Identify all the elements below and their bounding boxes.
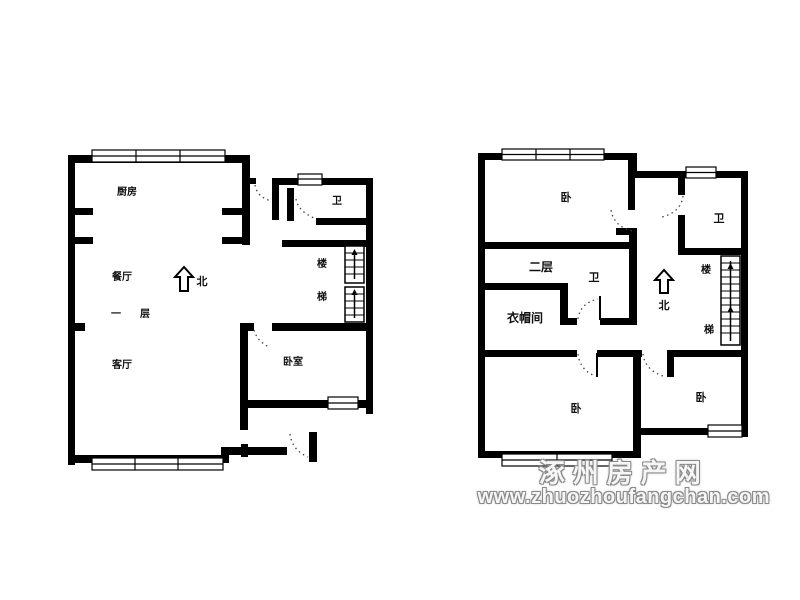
wall-segment xyxy=(667,350,674,377)
door-arc xyxy=(254,330,269,347)
door-arc xyxy=(662,196,683,217)
wall-segment xyxy=(478,153,485,458)
room-label-bath: 卫 xyxy=(589,271,600,284)
first-floor-windows xyxy=(92,150,358,470)
room-label-kitchen: 厨房 xyxy=(117,185,137,198)
wall-segment xyxy=(560,318,577,325)
wall-segment xyxy=(478,283,568,290)
door-arc xyxy=(296,199,314,218)
door-leaf xyxy=(596,353,598,377)
wall-segment xyxy=(241,444,248,457)
door-leaf xyxy=(599,296,601,320)
wall-segment xyxy=(741,171,748,437)
wall-segment xyxy=(222,208,250,215)
wall-segment xyxy=(222,237,250,244)
wall-segment xyxy=(272,323,373,331)
wall-segment xyxy=(240,323,248,430)
wall-segment xyxy=(478,242,637,249)
floor-label: 二层 xyxy=(529,260,553,274)
room-label-bedroom: 卧 xyxy=(561,191,572,204)
second-floor-plan: 卧 卫 二层 卫 北 楼 梯 衣帽间 卧 卧 xyxy=(478,149,748,466)
wall-segment xyxy=(600,318,637,325)
wall-segment xyxy=(68,237,93,244)
north-arrow-icon xyxy=(655,270,673,293)
window xyxy=(92,458,223,470)
window xyxy=(328,397,358,409)
wall-segment xyxy=(242,155,250,245)
floor-plan-canvas: 厨房 卫 餐厅 一 层 北 客厅 卧室 楼 梯 xyxy=(0,0,800,600)
stair-flight-icon xyxy=(345,246,364,283)
wall-segment xyxy=(316,218,373,225)
second-floor-windows xyxy=(502,149,742,466)
room-label-cloakroom: 衣帽间 xyxy=(507,310,543,325)
stairs-label-char: 楼 xyxy=(317,257,327,270)
room-label-bath: 卫 xyxy=(332,195,342,207)
window xyxy=(92,150,225,162)
wall-segment xyxy=(221,447,287,455)
wall-segment xyxy=(678,248,748,255)
door-arc xyxy=(578,299,598,319)
wall-segment xyxy=(68,208,93,215)
wall-segment xyxy=(366,178,373,414)
stair-flight-icon xyxy=(345,287,364,322)
stairs-label-char: 楼 xyxy=(701,263,711,276)
door-arc xyxy=(255,185,271,201)
floor-label-char: 一 xyxy=(111,309,121,320)
room-label-bedroom: 卧室 xyxy=(283,355,303,368)
second-floor-walls xyxy=(478,153,748,458)
window xyxy=(502,149,604,160)
door-arc xyxy=(611,210,633,231)
wall-segment xyxy=(250,178,256,184)
wall-segment xyxy=(478,350,577,357)
window xyxy=(502,454,612,466)
wall-segment xyxy=(68,155,75,465)
room-label-bath: 卫 xyxy=(714,212,725,225)
wall-segment xyxy=(678,178,685,195)
window xyxy=(708,425,742,437)
wall-segment xyxy=(287,188,294,221)
room-label-bedroom: 卧 xyxy=(696,391,707,404)
wall-segment xyxy=(240,323,254,331)
north-arrow-icon xyxy=(175,267,193,291)
stairs-label-char: 梯 xyxy=(704,323,714,336)
window xyxy=(298,174,322,185)
north-label: 北 xyxy=(659,298,670,312)
first-floor-door-arcs xyxy=(254,185,314,457)
door-arc xyxy=(290,434,308,457)
wall-segment xyxy=(309,432,317,462)
first-floor-stairs-icon xyxy=(345,246,364,322)
door-arc xyxy=(643,354,666,377)
stair-flight-icon xyxy=(721,256,740,345)
window xyxy=(686,167,716,178)
room-label-living: 客厅 xyxy=(111,358,132,371)
stairs-label-char: 梯 xyxy=(317,290,327,303)
wall-segment xyxy=(633,350,641,458)
first-floor-plan: 厨房 卫 餐厅 一 层 北 客厅 卧室 楼 梯 xyxy=(68,150,373,470)
floor-label-char: 层 xyxy=(140,308,150,320)
north-label: 北 xyxy=(197,274,208,288)
wall-segment xyxy=(68,323,85,331)
wall-segment xyxy=(667,350,748,357)
second-floor-stairs-icon xyxy=(721,256,740,345)
door-arc xyxy=(578,354,595,376)
floor-plan-image: 厨房 卫 餐厅 一 层 北 客厅 卧室 楼 梯 xyxy=(0,0,800,600)
wall-segment xyxy=(628,153,635,210)
room-label-bedroom: 卧 xyxy=(571,402,582,415)
room-label-dining: 餐厅 xyxy=(111,270,132,283)
